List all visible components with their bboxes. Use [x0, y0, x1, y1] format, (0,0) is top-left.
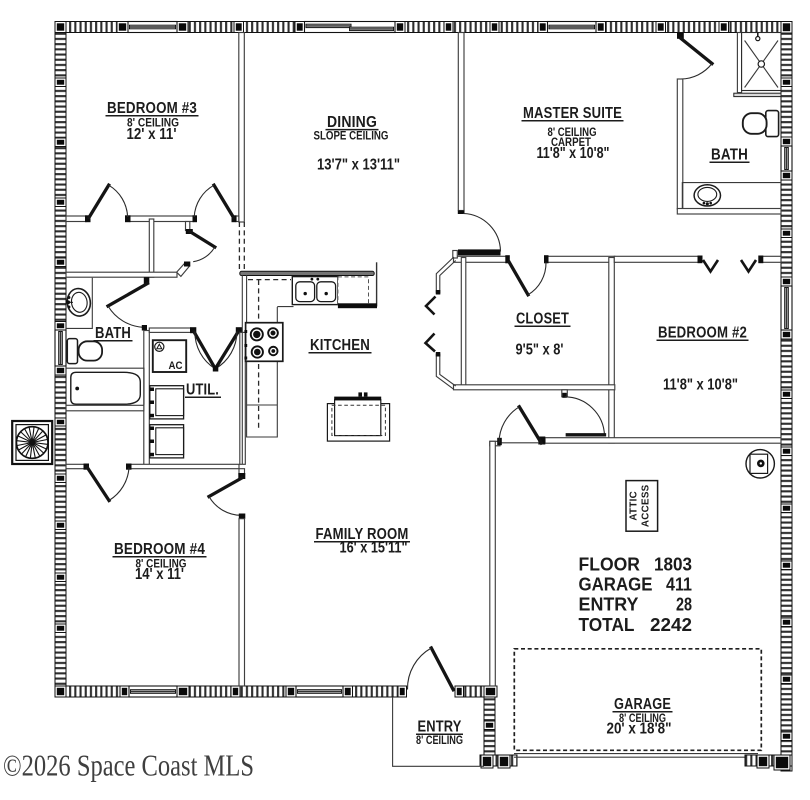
svg-text:ENTRY: ENTRY: [579, 594, 640, 615]
svg-text:BEDROOM #4: BEDROOM #4: [114, 541, 205, 558]
svg-text:9'5" x 8': 9'5" x 8': [516, 342, 564, 359]
svg-text:20' x 18'8": 20' x 18'8": [607, 721, 672, 738]
svg-text:SLOPE CEILING: SLOPE CEILING: [314, 130, 389, 142]
svg-text:1803: 1803: [654, 554, 692, 575]
svg-text:2242: 2242: [650, 614, 692, 635]
svg-text:28: 28: [676, 594, 692, 615]
svg-text:ENTRY: ENTRY: [418, 719, 462, 736]
svg-text:411: 411: [666, 574, 692, 595]
svg-text:14' x 11': 14' x 11': [135, 566, 184, 583]
svg-text:BATH: BATH: [711, 147, 748, 164]
svg-text:BEDROOM #3: BEDROOM #3: [107, 100, 197, 117]
svg-text:BATH: BATH: [95, 325, 131, 342]
svg-text:13'7" x 13'11": 13'7" x 13'11": [317, 157, 400, 174]
svg-text:DINING: DINING: [327, 114, 377, 131]
svg-text:FLOOR: FLOOR: [579, 554, 641, 575]
svg-text:AC: AC: [169, 360, 183, 372]
svg-text:MASTER SUITE: MASTER SUITE: [523, 105, 622, 122]
svg-text:CLOSET: CLOSET: [516, 311, 569, 328]
svg-text:ATTIC: ATTIC: [629, 491, 640, 521]
svg-text:©2026 Space Coast MLS: ©2026 Space Coast MLS: [3, 749, 254, 783]
svg-text:11'8" x 10'8": 11'8" x 10'8": [663, 377, 738, 394]
svg-text:11'8" x 10'8": 11'8" x 10'8": [537, 145, 610, 162]
svg-text:8' CEILING: 8' CEILING: [416, 735, 463, 747]
svg-text:ACCESS: ACCESS: [641, 484, 652, 527]
svg-text:KITCHEN: KITCHEN: [310, 337, 370, 354]
svg-text:TOTAL: TOTAL: [579, 614, 635, 635]
svg-text:GARAGE: GARAGE: [614, 696, 671, 713]
svg-text:UTIL.: UTIL.: [186, 382, 219, 399]
svg-text:12' x 11': 12' x 11': [127, 126, 177, 143]
svg-text:BEDROOM #2: BEDROOM #2: [658, 325, 747, 342]
svg-text:16' x 15'11": 16' x 15'11": [340, 540, 408, 557]
svg-text:GARAGE: GARAGE: [579, 574, 653, 595]
